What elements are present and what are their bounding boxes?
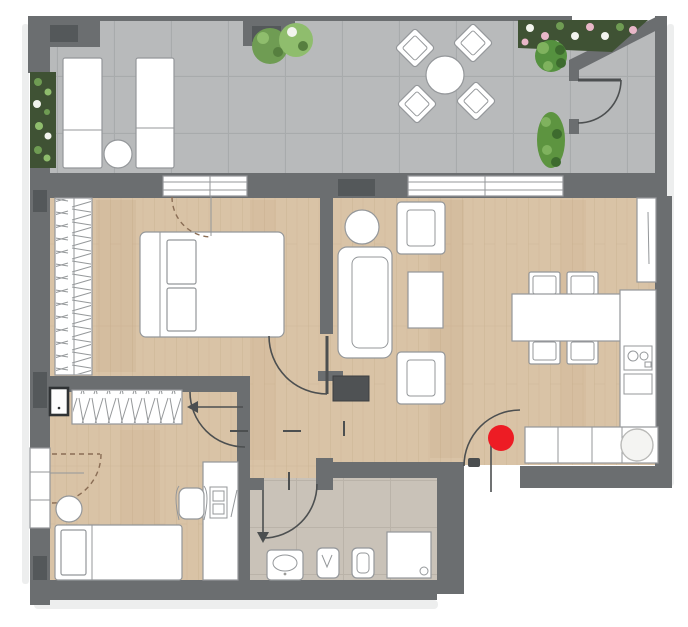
dining-table: [512, 294, 621, 341]
round-sink: [621, 429, 653, 461]
tall-cabinet: [637, 198, 656, 282]
door-hinge-block: [468, 458, 480, 467]
wardrobe-hatched: [55, 198, 92, 375]
sun-lounger: [136, 58, 174, 168]
red-position-marker[interactable]: [488, 425, 514, 451]
round-side-table: [345, 210, 379, 244]
double-bed: [140, 232, 284, 337]
office-chair: [176, 486, 207, 520]
wall-panel-box: [50, 388, 68, 415]
single-bed: [55, 525, 182, 580]
toilet: [352, 548, 374, 578]
tv-unit: [333, 376, 369, 401]
pillow: [167, 288, 196, 331]
round-dining-table: [426, 56, 464, 94]
washbasin: [267, 550, 303, 580]
dining-chair: [529, 338, 560, 364]
pillow: [167, 240, 196, 284]
coffee-table: [408, 272, 443, 328]
outer-shadow-left: [22, 24, 29, 584]
floor-plan-page: [0, 0, 688, 627]
pouf-round: [56, 496, 82, 522]
side-table-round: [104, 140, 132, 168]
armchair: [397, 202, 445, 254]
sofa: [338, 247, 392, 358]
armchair: [397, 352, 445, 404]
living-terrace-window: [408, 176, 563, 196]
outer-shadow-bottom: [34, 600, 438, 609]
pillow: [61, 530, 86, 575]
dining-chair: [567, 338, 598, 364]
desk: [203, 462, 238, 580]
hall-closet-hatched: [72, 390, 182, 424]
planter-hedge: [30, 72, 56, 168]
entrance-threshold: [464, 466, 520, 488]
sun-lounger: [63, 58, 102, 168]
counter-bottom: [525, 427, 658, 463]
bedroom-terrace-window: [163, 176, 247, 196]
tall-plant: [537, 112, 565, 168]
counter-right: [620, 290, 656, 430]
floor-plan-canvas: [0, 0, 688, 627]
fern-plant: [535, 40, 567, 72]
shower-tray: [387, 532, 431, 578]
bidet: [317, 548, 339, 578]
